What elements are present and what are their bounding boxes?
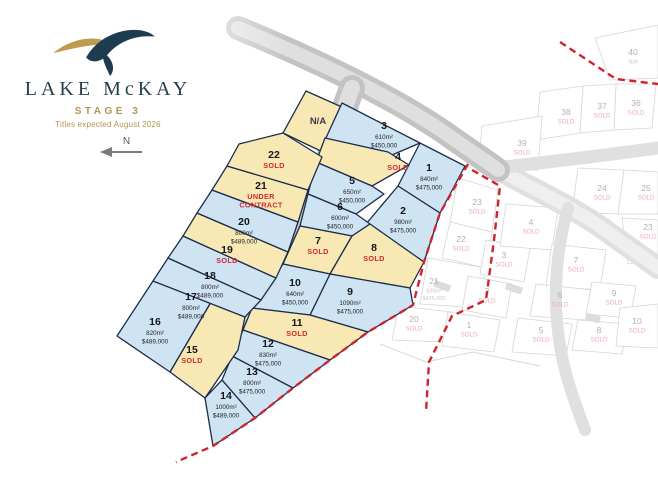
svg-text:38: 38	[561, 107, 571, 117]
svg-text:1000m²: 1000m²	[215, 404, 236, 411]
svg-text:20: 20	[238, 216, 250, 228]
svg-text:6: 6	[337, 201, 343, 213]
svg-text:8: 8	[597, 325, 602, 335]
lot-f25-shape	[618, 170, 658, 214]
svg-text:$489,000: $489,000	[231, 239, 258, 246]
svg-text:640m²: 640m²	[286, 291, 304, 298]
svg-text:SOLD: SOLD	[568, 267, 585, 274]
svg-text:$475,000: $475,000	[239, 389, 266, 396]
compass: N	[100, 136, 142, 157]
svg-text:SOLD: SOLD	[307, 247, 328, 256]
svg-text:3: 3	[381, 120, 387, 132]
svg-text:SOLD: SOLD	[640, 234, 657, 241]
svg-text:22: 22	[456, 234, 466, 244]
brand-title: LAKE McKAY	[10, 78, 206, 101]
svg-text:SOLD: SOLD	[263, 161, 284, 170]
svg-text:9: 9	[612, 288, 617, 298]
svg-text:840m²: 840m²	[420, 176, 438, 183]
svg-text:25: 25	[641, 183, 651, 193]
svg-text:SOLD: SOLD	[469, 209, 486, 216]
svg-text:SOLD: SOLD	[628, 110, 645, 117]
svg-text:SOLD: SOLD	[461, 332, 478, 339]
svg-text:SOLD: SOLD	[558, 119, 575, 126]
svg-text:SOLD: SOLD	[523, 229, 540, 236]
svg-text:$425,000: $425,000	[423, 296, 446, 302]
svg-text:N/A: N/A	[310, 116, 327, 127]
svg-text:SOLD: SOLD	[496, 262, 513, 269]
site-plan-canvas: 40N/A36SOLD37SOLD38SOLD39SOLD24SOLD25SOL…	[0, 0, 658, 493]
svg-text:19: 19	[221, 244, 233, 256]
svg-text:$450,000: $450,000	[371, 143, 398, 150]
svg-text:830m²: 830m²	[259, 352, 277, 359]
svg-text:40: 40	[628, 47, 638, 57]
brand-stage: STAGE 3	[10, 106, 206, 117]
svg-text:$489,000: $489,000	[213, 413, 240, 420]
svg-text:800m²: 800m²	[235, 230, 253, 237]
svg-text:37: 37	[597, 101, 607, 111]
lot-f10-shape	[616, 304, 658, 348]
svg-text:8: 8	[371, 242, 377, 254]
svg-text:5: 5	[539, 325, 544, 335]
svg-text:800m²: 800m²	[182, 305, 200, 312]
svg-text:$450,000: $450,000	[327, 224, 354, 231]
svg-text:13: 13	[246, 366, 258, 378]
svg-text:9: 9	[347, 286, 353, 298]
svg-text:2: 2	[400, 205, 406, 217]
svg-text:SOLD: SOLD	[514, 150, 531, 157]
lot-f4-shape	[500, 204, 558, 250]
lot-f38-shape	[536, 86, 583, 140]
svg-text:12: 12	[262, 338, 274, 350]
lot-f40-shape	[595, 25, 658, 80]
svg-text:SOLD: SOLD	[216, 256, 237, 265]
svg-text:23: 23	[643, 222, 653, 232]
svg-text:1: 1	[426, 162, 432, 174]
svg-text:1: 1	[467, 320, 472, 330]
svg-text:4: 4	[395, 151, 401, 163]
svg-text:800m²: 800m²	[243, 380, 261, 387]
svg-text:$475,000: $475,000	[255, 361, 282, 368]
svg-text:610m²: 610m²	[375, 134, 393, 141]
svg-text:6: 6	[558, 290, 563, 300]
svg-text:SOLD: SOLD	[387, 163, 408, 172]
svg-text:15: 15	[186, 344, 198, 356]
svg-text:SOLD: SOLD	[591, 337, 608, 344]
svg-text:$475,000: $475,000	[416, 185, 443, 192]
svg-text:23: 23	[472, 197, 482, 207]
svg-text:SOLD: SOLD	[606, 300, 623, 307]
brand-bird-icon	[50, 22, 166, 76]
svg-text:SOLD: SOLD	[181, 356, 202, 365]
brand-block: LAKE McKAY STAGE 3 Titles expected Augus…	[10, 22, 206, 129]
titles-note: Titles expected August 2026	[10, 120, 206, 129]
svg-text:$489,000: $489,000	[142, 339, 169, 346]
svg-text:17: 17	[185, 291, 197, 303]
svg-text:SOLD: SOLD	[286, 329, 307, 338]
svg-text:24: 24	[597, 183, 607, 193]
svg-text:10: 10	[289, 277, 301, 289]
compass-label: N	[123, 136, 131, 147]
svg-text:$475,000: $475,000	[337, 309, 364, 316]
compass-arrow-head	[100, 147, 112, 157]
svg-text:20: 20	[409, 314, 419, 324]
svg-text:39: 39	[517, 138, 527, 148]
svg-text:SOLD: SOLD	[594, 195, 611, 202]
svg-text:N/A: N/A	[628, 60, 638, 66]
svg-text:3: 3	[502, 250, 507, 260]
svg-text:SOLD: SOLD	[629, 328, 646, 335]
lot-f40-label: 40N/A	[628, 47, 638, 66]
lot-na-label: N/A	[310, 116, 327, 127]
svg-text:16: 16	[149, 316, 161, 328]
svg-text:7: 7	[574, 255, 579, 265]
svg-text:CONTRACT: CONTRACT	[239, 201, 283, 210]
svg-text:$475,000: $475,000	[390, 228, 417, 235]
svg-text:SOLD: SOLD	[363, 254, 384, 263]
svg-text:7: 7	[315, 235, 321, 247]
svg-text:21: 21	[429, 276, 439, 286]
svg-text:4: 4	[529, 217, 534, 227]
svg-text:10: 10	[632, 316, 642, 326]
svg-text:SOLD: SOLD	[533, 337, 550, 344]
svg-text:11: 11	[291, 317, 302, 329]
svg-text:500m²: 500m²	[426, 289, 442, 295]
svg-text:22: 22	[268, 149, 280, 161]
svg-text:SOLD: SOLD	[552, 302, 569, 309]
svg-text:SOLD: SOLD	[406, 326, 423, 333]
svg-text:5: 5	[349, 175, 355, 187]
svg-text:SOLD: SOLD	[453, 246, 470, 253]
svg-text:36: 36	[631, 98, 641, 108]
svg-text:1090m²: 1090m²	[339, 300, 360, 307]
svg-text:SOLD: SOLD	[638, 195, 655, 202]
svg-text:21: 21	[255, 180, 267, 192]
svg-text:980m²: 980m²	[394, 219, 412, 226]
svg-text:SOLD: SOLD	[594, 113, 611, 120]
svg-text:$489,000: $489,000	[197, 293, 224, 300]
svg-text:$450,000: $450,000	[282, 300, 309, 307]
svg-text:600m²: 600m²	[331, 215, 349, 222]
stage3-lots-layer	[117, 91, 465, 446]
svg-text:820m²: 820m²	[146, 330, 164, 337]
svg-text:14: 14	[220, 390, 232, 402]
svg-text:800m²: 800m²	[201, 284, 219, 291]
svg-text:$489,000: $489,000	[178, 314, 205, 321]
svg-text:18: 18	[204, 270, 216, 282]
svg-text:650m²: 650m²	[343, 189, 361, 196]
driveway-stub	[506, 286, 522, 291]
driveway-stub	[586, 316, 600, 320]
